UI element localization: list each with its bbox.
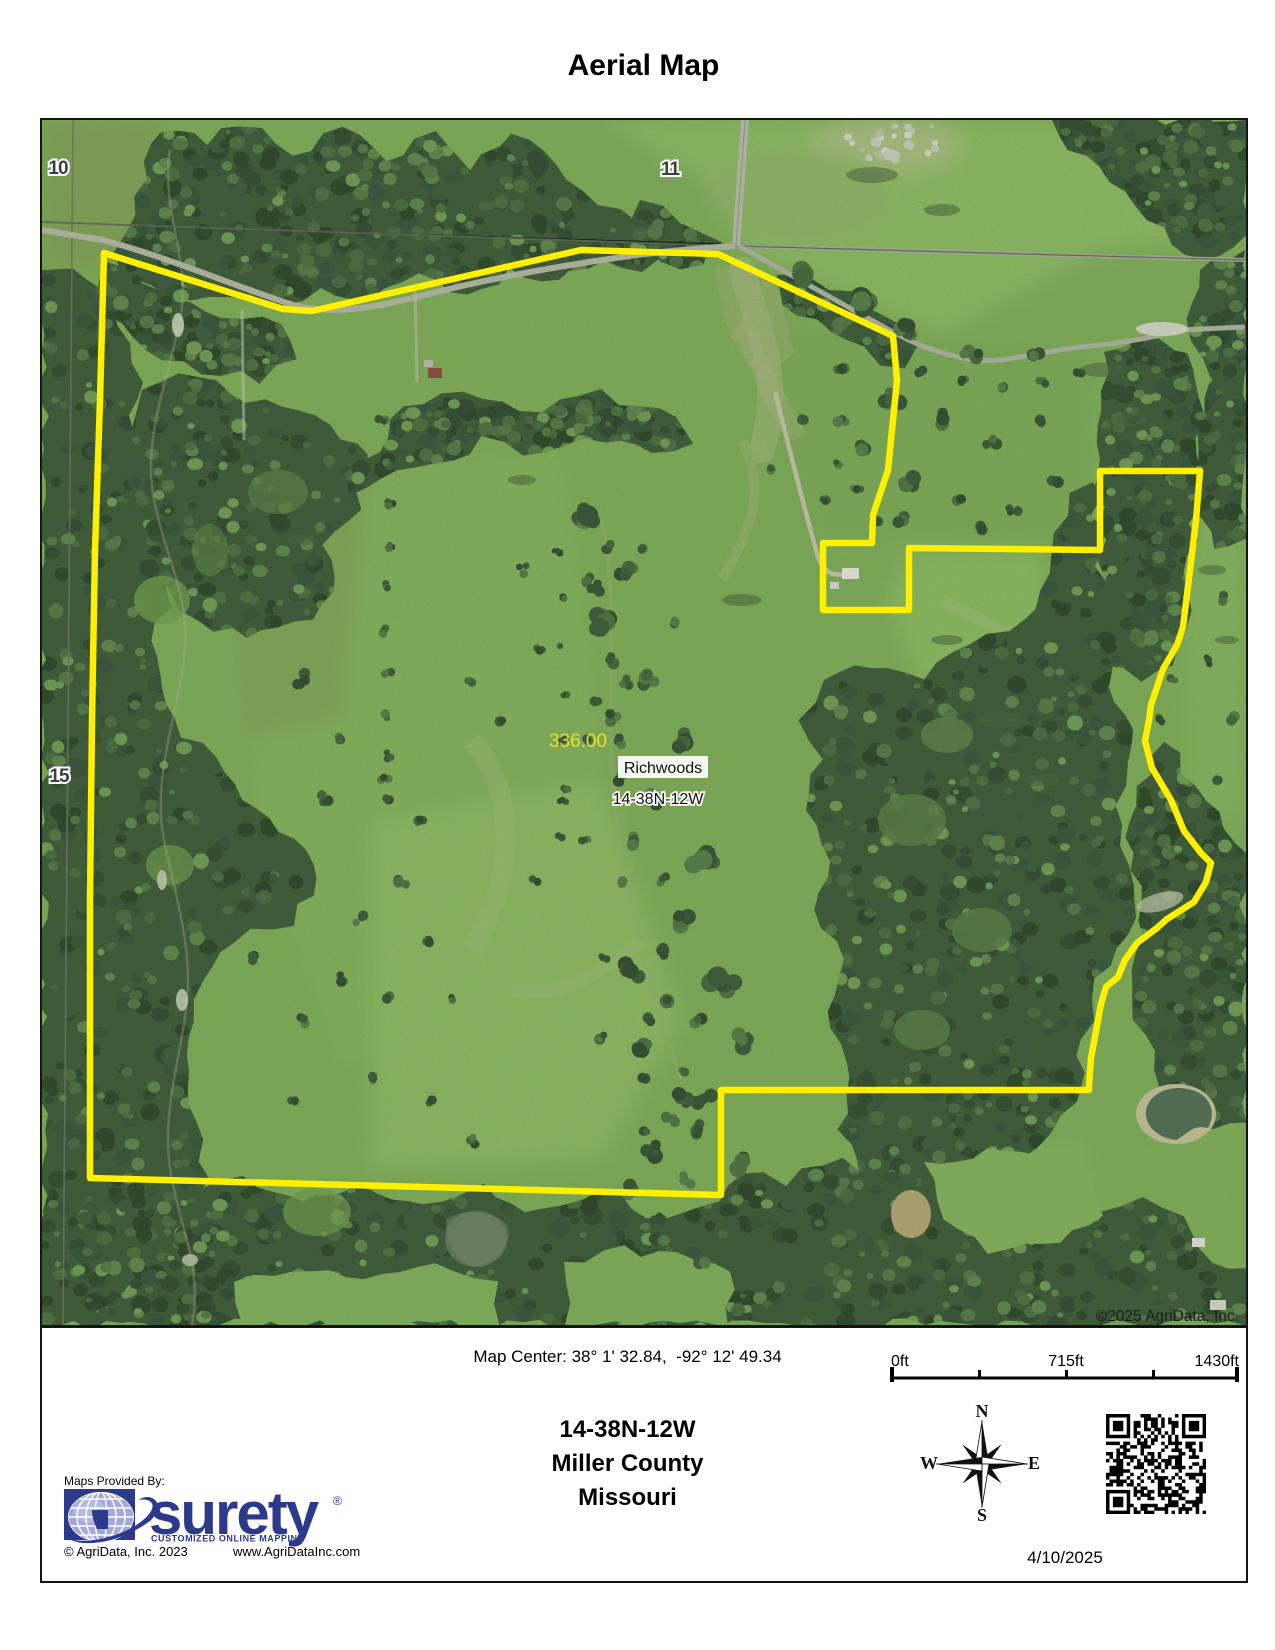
svg-text:715ft: 715ft: [1048, 1353, 1084, 1370]
svg-text:14-38N-12W: 14-38N-12W: [613, 791, 705, 808]
svg-text:Richwoods: Richwoods: [624, 760, 702, 777]
svg-text:©2025 AgriData, Inc.: ©2025 AgriData, Inc.: [1096, 1308, 1239, 1325]
svg-text:336.00: 336.00: [549, 731, 607, 752]
svg-text:15: 15: [49, 766, 70, 787]
svg-text:S: S: [977, 1505, 987, 1525]
svg-text:0ft: 0ft: [891, 1353, 909, 1370]
svg-text:N: N: [976, 1401, 989, 1421]
svg-text:11: 11: [661, 159, 681, 180]
svg-text:CUSTOMIZED ONLINE MAPPING: CUSTOMIZED ONLINE MAPPING: [151, 1534, 305, 1544]
svg-text:1430ft: 1430ft: [1195, 1353, 1240, 1370]
svg-text:10: 10: [48, 158, 68, 179]
svg-text:W: W: [920, 1453, 938, 1473]
svg-text:®: ®: [333, 1494, 342, 1508]
svg-text:E: E: [1028, 1453, 1040, 1473]
